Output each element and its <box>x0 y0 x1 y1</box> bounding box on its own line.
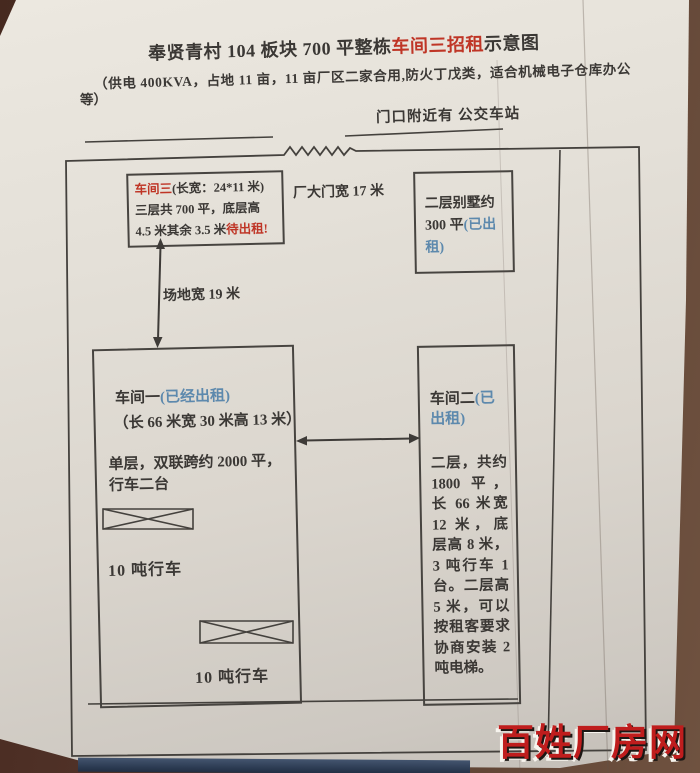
diagram-lines-svg <box>0 0 700 773</box>
spacing-arrowhead-right <box>409 434 420 444</box>
spacing-arrowhead-left <box>296 436 307 446</box>
spacing-arrow <box>305 439 412 441</box>
crane-symbol-2 <box>200 621 293 643</box>
inner-lane-line <box>548 150 560 753</box>
yard-arrowhead-bottom <box>153 337 163 348</box>
yard-bottom-line <box>88 699 518 704</box>
crease-line-2 <box>497 60 520 773</box>
crane-symbol-1 <box>103 509 193 529</box>
table-edge-band <box>78 758 470 773</box>
top-road-line-right <box>345 129 503 136</box>
top-road-line-left <box>85 137 273 142</box>
crease-line-1 <box>583 0 608 773</box>
diagram-content: 奉贤青村 104 板块 700 平整栋车间三招租示意图 （供电 400KVA，占… <box>0 0 700 773</box>
photo-background: 奉贤青村 104 板块 700 平整栋车间三招租示意图 （供电 400KVA，占… <box>0 0 700 773</box>
yard-arrowhead-top <box>156 238 165 249</box>
yard-width-arrow <box>158 246 161 340</box>
watermark-logo: 百姓厂房网 <box>497 712 687 766</box>
